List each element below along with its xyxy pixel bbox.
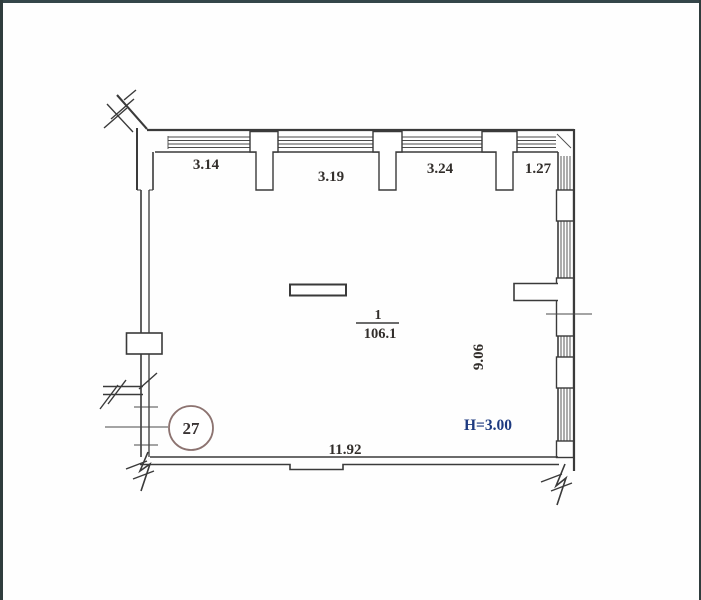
floor-plan-drawing: 3.14 3.19 3.24 1.27 11.92 9.06 H=3.00 1 … <box>0 0 701 600</box>
top-dimension-2: 3.19 <box>318 169 344 185</box>
side-dimension: 9.06 <box>471 343 487 370</box>
window-pier-1 <box>250 132 278 191</box>
top-dimension-3: 3.24 <box>427 161 454 177</box>
top-left-break-marks <box>104 90 147 132</box>
right-window-wall <box>514 129 592 471</box>
right-wall-stub <box>514 284 558 301</box>
ceiling-height-label: H=3.00 <box>464 417 512 434</box>
right-wall-pier-1 <box>557 190 574 221</box>
top-dimension-1: 3.14 <box>193 157 220 173</box>
bottom-right-break <box>541 464 572 505</box>
room-area: 106.1 <box>364 326 397 342</box>
right-wall-pier-4 <box>557 441 574 458</box>
right-wall-pier-3 <box>557 357 574 388</box>
room-number: 1 <box>375 308 382 323</box>
floor-plan-page: 3.14 3.19 3.24 1.27 11.92 9.06 H=3.00 1 … <box>0 0 701 600</box>
interior-partition-stub <box>290 285 346 296</box>
room-label: 1 106.1 <box>356 308 399 342</box>
bottom-wall <box>140 457 559 470</box>
top-dimension-4: 1.27 <box>525 161 552 177</box>
frame-border <box>0 0 701 600</box>
window-pier-3 <box>482 132 517 191</box>
dimension-labels: 3.14 3.19 3.24 1.27 11.92 9.06 H=3.00 <box>193 157 552 458</box>
unit-number: 27 <box>183 419 201 438</box>
right-wall-pier-2 <box>557 278 574 336</box>
bottom-dimension: 11.92 <box>329 442 362 458</box>
window-pier-2 <box>373 132 402 191</box>
unit-number-badge: 27 <box>169 406 213 450</box>
bottom-left-break <box>126 452 154 491</box>
left-wall <box>105 128 168 457</box>
left-wall-pilaster <box>127 333 163 354</box>
